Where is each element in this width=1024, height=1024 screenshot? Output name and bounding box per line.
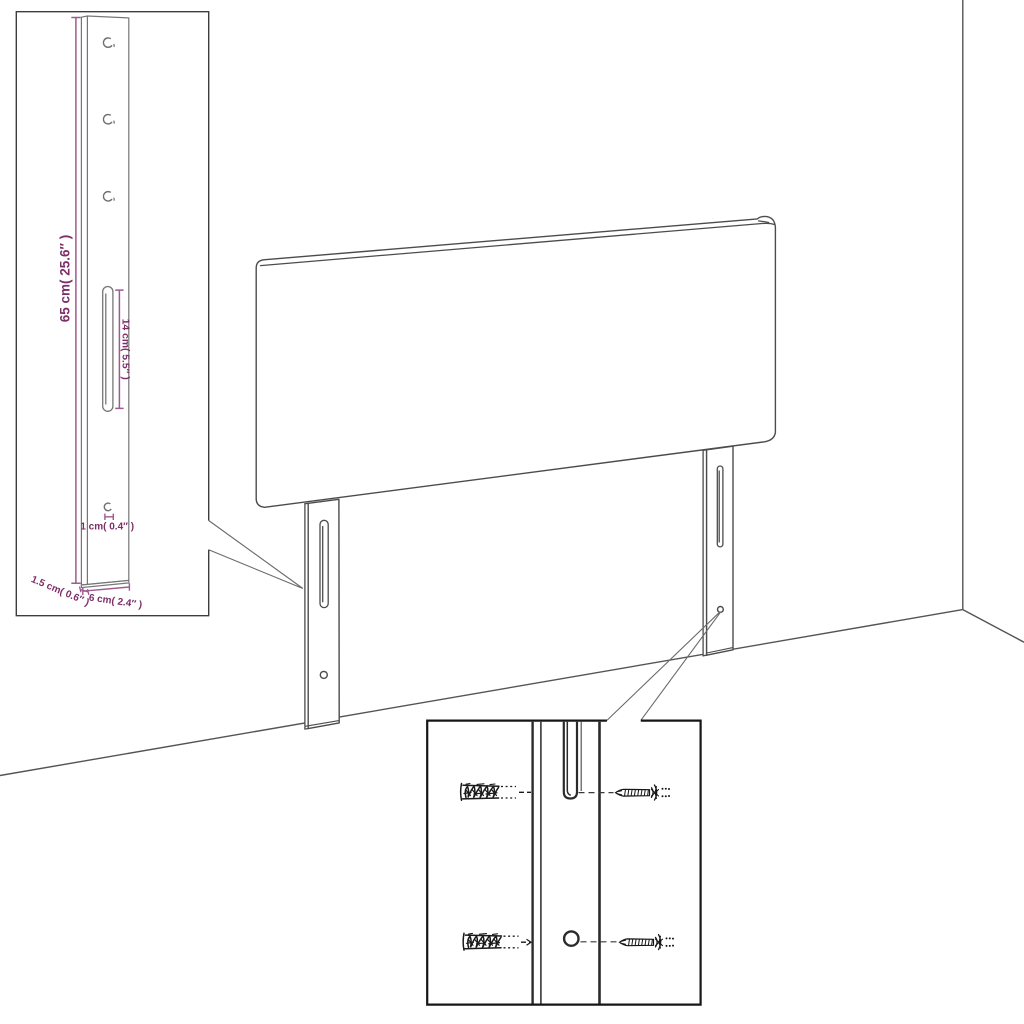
svg-text:1 cm( 0.4″ ): 1 cm( 0.4″ ) xyxy=(80,522,134,533)
svg-text:14 cm( 5.5″ ): 14 cm( 5.5″ ) xyxy=(120,319,131,380)
svg-text:65 cm( 25.6″ ): 65 cm( 25.6″ ) xyxy=(58,235,73,323)
